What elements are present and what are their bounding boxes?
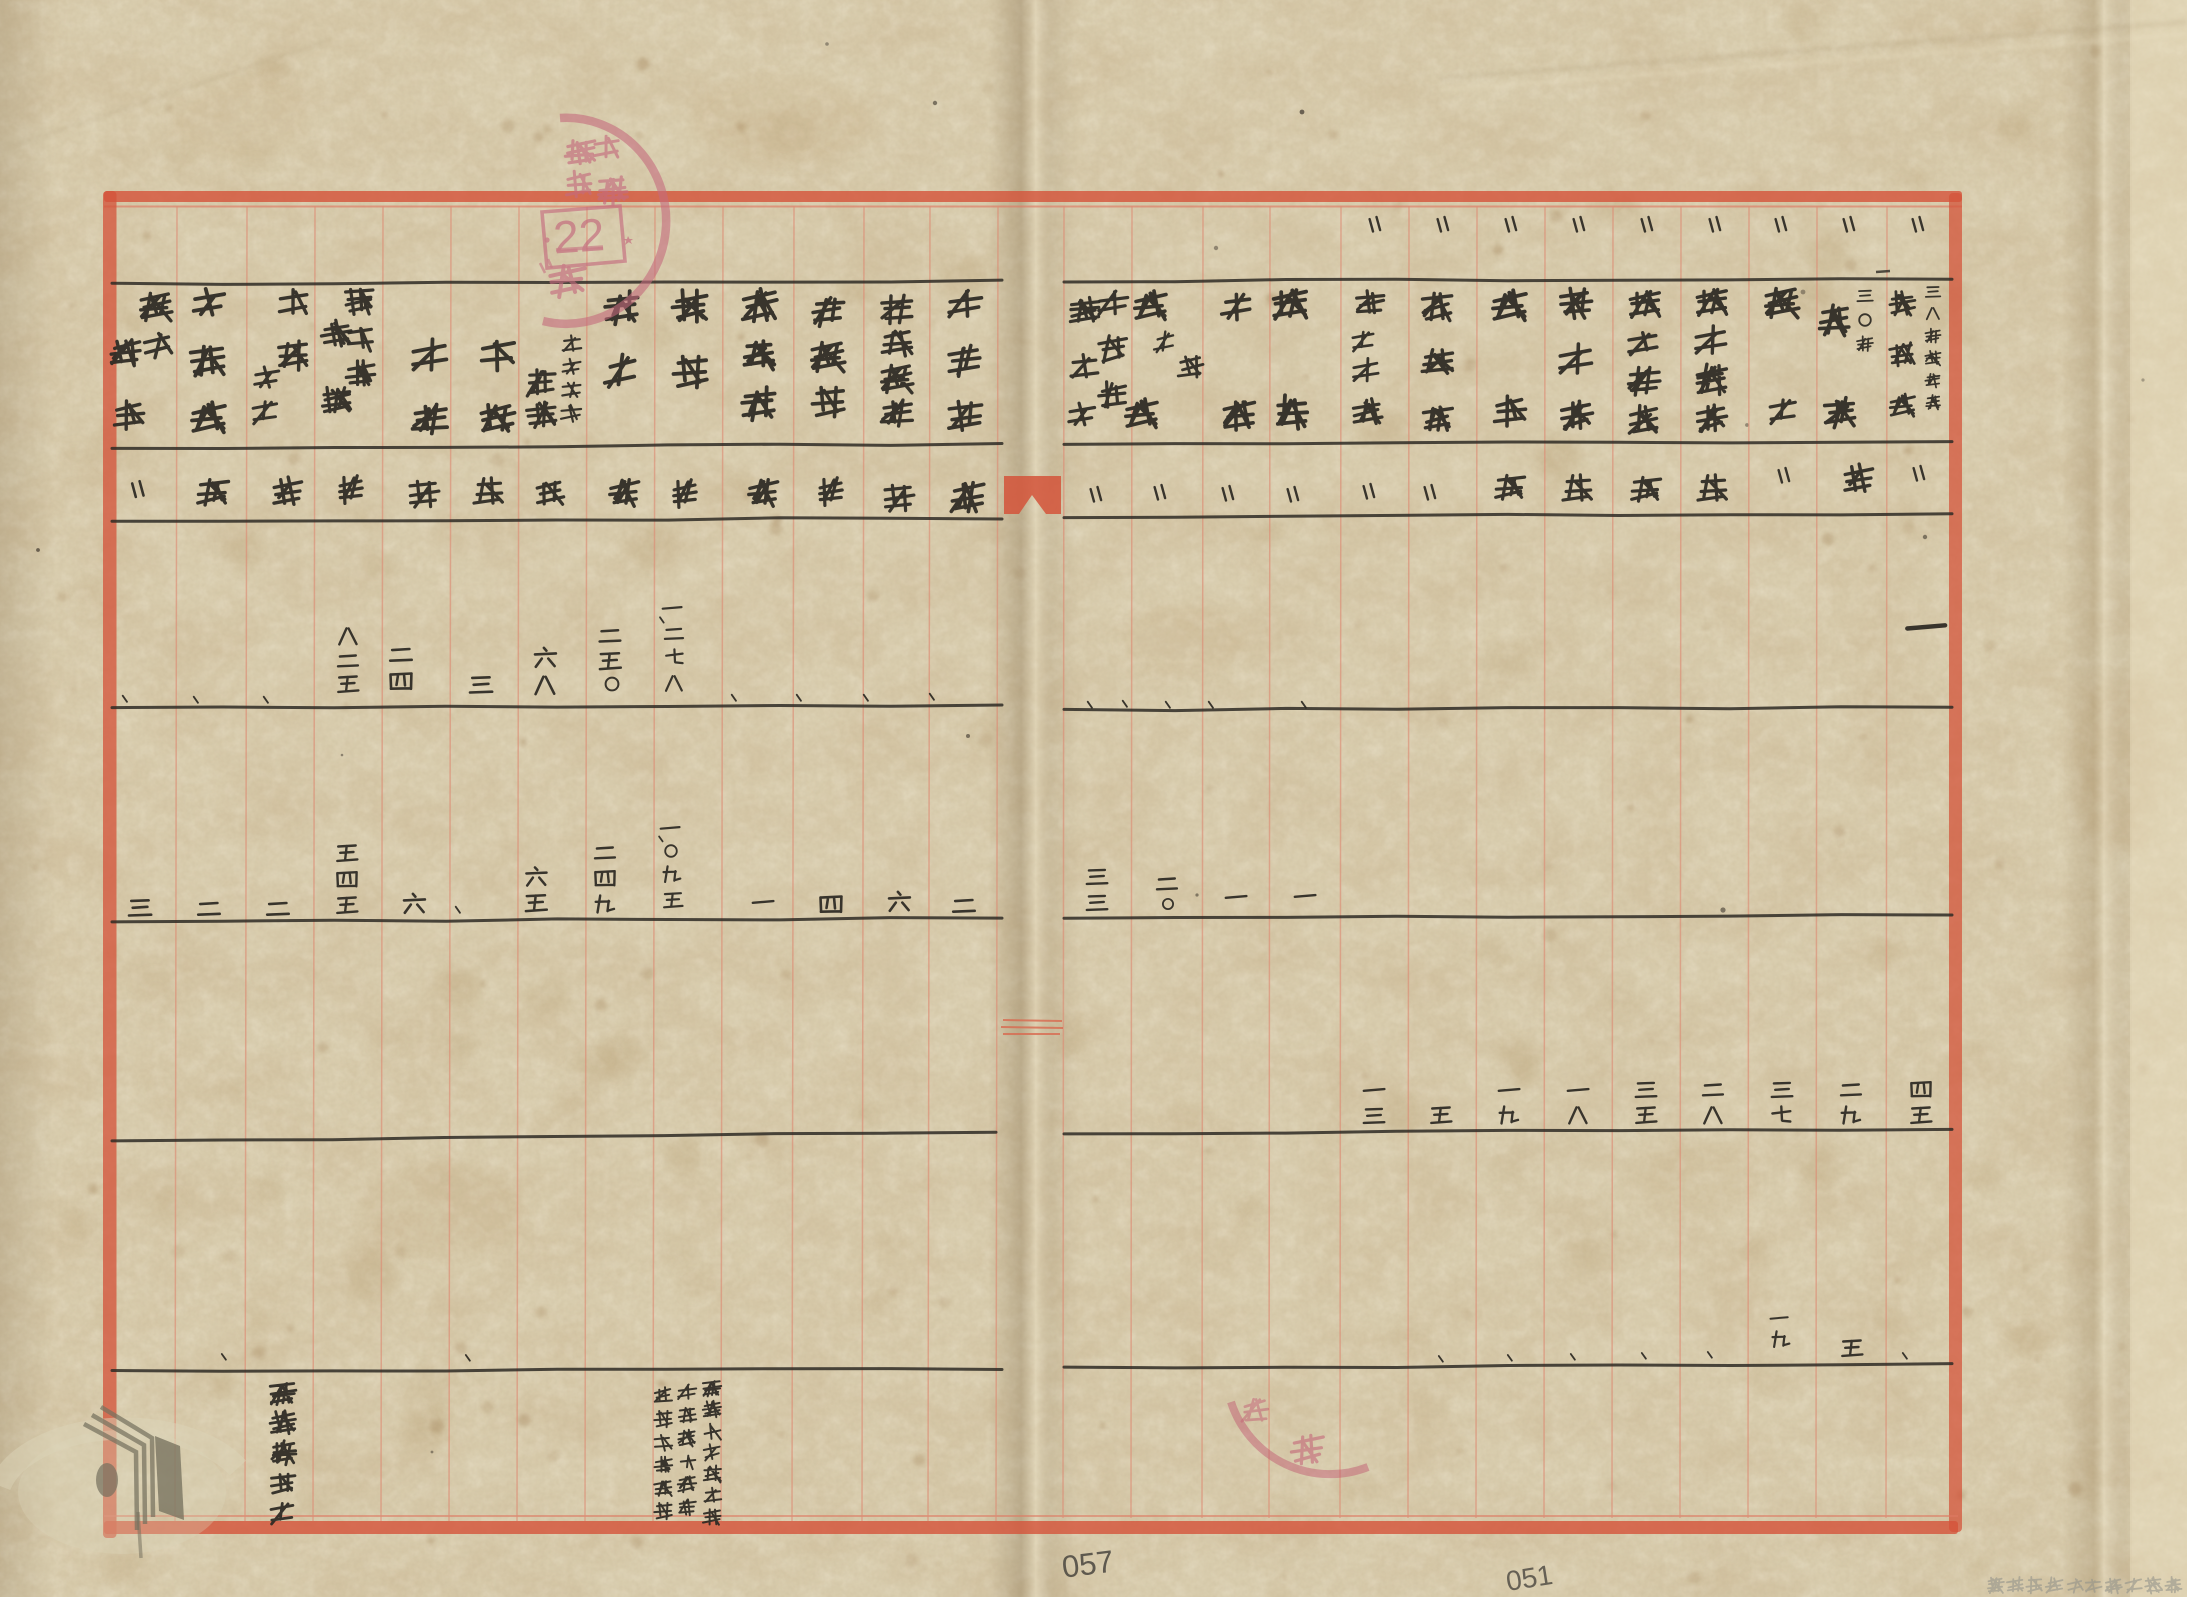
svg-text:22: 22 (552, 208, 607, 263)
svg-text:057: 057 (1060, 1544, 1116, 1585)
